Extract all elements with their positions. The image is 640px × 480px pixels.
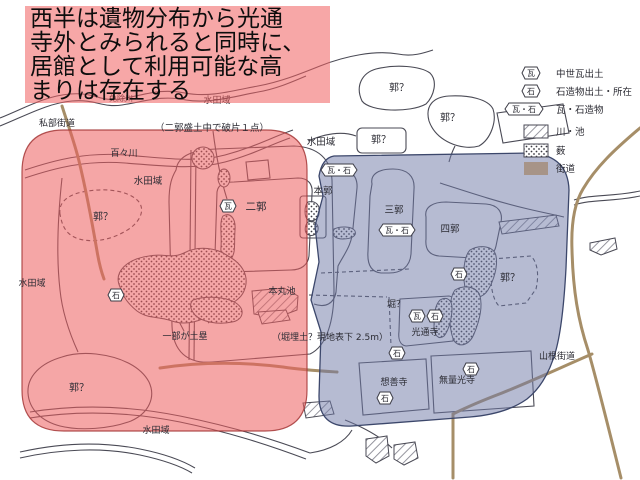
badge-text: 瓦・石 xyxy=(512,105,536,114)
annotation-box: 西半は遺物分布から光通 寺外とみられると同時に、 居館として利用可能な高 まりは… xyxy=(25,6,330,103)
ishi-marker-icon: 石 xyxy=(377,392,393,404)
label-kuruwa-top2: 郭？ xyxy=(440,111,460,124)
label-hori-note: （堀埋土？現地表下 2.5m） xyxy=(272,331,388,343)
label-dodo-river: 百々川 xyxy=(110,148,137,159)
annotation-line: 居館として利用可能な高 xyxy=(30,55,330,79)
badge-text: 石 xyxy=(381,394,389,403)
label-muryokoji: 無量光寺 xyxy=(439,374,475,386)
legend-kawara-ishi-marker-icon: 瓦・石 xyxy=(505,103,543,115)
site-map-page: 私部街道 免除川 水田域 （二郭盛土中で破片１点） 百々川 水田域 郭？ 二郭 … xyxy=(0,0,640,480)
kawara-marker-icon: 瓦 xyxy=(220,200,236,212)
legend-label-ishi: 石造物出土・所在 xyxy=(556,86,632,98)
ishi-marker-icon: 石 xyxy=(463,363,479,375)
label-sankaku: 三郭 xyxy=(384,204,404,216)
label-suiden-center: 水田域 xyxy=(307,136,336,148)
legend-label-kawara: 中世瓦出土 xyxy=(556,68,604,80)
label-honkaku: 本郭 xyxy=(313,185,333,197)
label-sozenji: 想善寺 xyxy=(380,376,407,388)
badge-text: 石 xyxy=(431,312,439,321)
label-suiden-left: 水田域 xyxy=(134,175,163,187)
label-yamane-kaido: 山根街道 xyxy=(539,350,575,362)
badge-text: 石 xyxy=(112,291,120,300)
west-zone-overlay xyxy=(22,130,307,431)
badge-text: 瓦 xyxy=(413,312,421,321)
river-pond-swatch xyxy=(524,125,548,138)
annotation-line: 西半は遺物分布から光通 xyxy=(30,7,330,31)
badge-text: 石 xyxy=(393,349,401,358)
label-nikaku-note: （二郭盛土中で破片１点） xyxy=(155,122,269,134)
annotation-line: まりは存在する xyxy=(30,79,330,103)
badge-text: 石 xyxy=(467,365,475,374)
legend-label-thicket: 薮 xyxy=(556,145,566,157)
kawara-ishi-marker-icon: 瓦・石 xyxy=(379,224,415,236)
thicket-swatch xyxy=(524,144,548,157)
kawara-marker-icon: 瓦 xyxy=(409,310,425,322)
ishi-marker-icon: 石 xyxy=(451,268,467,280)
badge-text: 石 xyxy=(527,87,535,96)
label-nikaku: 二郭 xyxy=(246,200,267,213)
ishi-marker-icon: 石 xyxy=(389,347,405,359)
label-suiden-far-left: 水田域 xyxy=(18,277,45,289)
badge-text: 石 xyxy=(455,270,463,279)
legend-ishi-marker-icon: 石 xyxy=(522,85,540,97)
label-hori: 堀？ xyxy=(387,299,405,310)
ishi-marker-icon: 石 xyxy=(108,289,124,301)
label-kisabe-kaido: 私部街道 xyxy=(39,117,75,129)
legend-label-river-pond: 川・池 xyxy=(556,126,585,138)
badge-text: 瓦・石 xyxy=(385,226,409,235)
ishi-marker-icon: 石 xyxy=(427,310,443,322)
legend-label-kawara-ishi: 瓦・石造物 xyxy=(556,104,604,116)
badge-text: 瓦 xyxy=(224,202,232,211)
label-honmaru-ike: 本丸池 xyxy=(268,285,295,297)
label-kuruwa-left: 郭？ xyxy=(93,210,113,223)
annotation-line: 寺外とみられると同時に、 xyxy=(30,31,330,55)
legend-kawara-marker-icon: 瓦 xyxy=(522,67,540,79)
road-swatch xyxy=(524,162,548,175)
label-shikaku: 四郭 xyxy=(440,223,460,235)
label-kotsuji: 光通寺 xyxy=(411,326,438,338)
badge-text: 瓦 xyxy=(527,69,535,78)
badge-text: 瓦・石 xyxy=(327,166,351,175)
label-kuruwa-box: 郭？ xyxy=(371,133,391,146)
label-kuruwa-blue: 郭？ xyxy=(500,271,520,284)
label-suiden-bottom: 水田域 xyxy=(142,424,169,436)
label-kuruwa-bottom-left: 郭？ xyxy=(69,381,89,394)
label-kuruwa-top1: 郭？ xyxy=(389,81,409,94)
legend-label-road: 街道 xyxy=(556,163,576,175)
label-dorui: 一部が土塁 xyxy=(162,330,207,342)
kawara-ishi-marker-icon: 瓦・石 xyxy=(321,164,357,176)
